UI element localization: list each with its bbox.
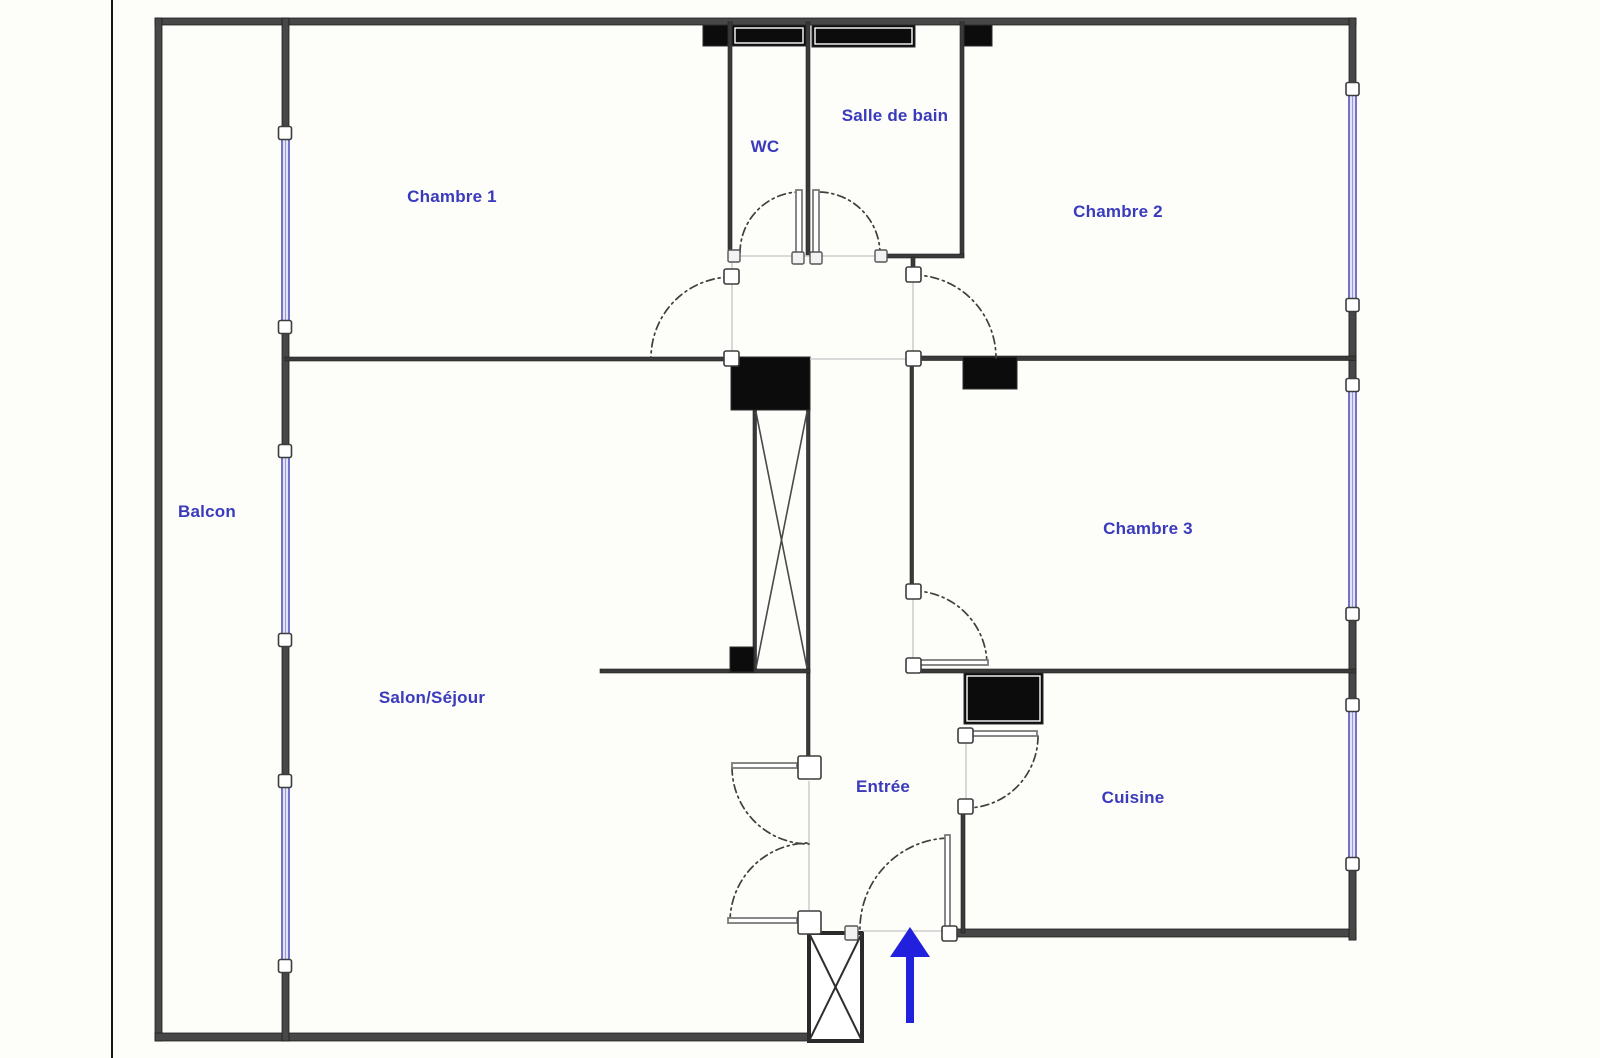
label-chambre2: Chambre 2	[1073, 202, 1163, 221]
leaf-sdb	[813, 190, 819, 256]
arc-salon-door-lower	[730, 843, 809, 922]
door-handle	[906, 658, 921, 673]
window-handle	[279, 634, 292, 647]
salon-door-post-upper	[798, 756, 821, 779]
wall-balcony-inner-seg4	[282, 966, 289, 1041]
wall-salon-entree	[600, 669, 810, 673]
wall-cuisine-west	[961, 808, 965, 933]
window-handle	[1346, 608, 1359, 621]
door-arcs	[651, 192, 1038, 931]
label-wc: WC	[751, 137, 780, 156]
wall-wc-sdb-divider	[806, 22, 810, 255]
leaf-salon-lower	[728, 918, 797, 923]
door-handle	[906, 351, 921, 366]
wall-right-seg2	[1349, 305, 1356, 385]
entrance-arrow-shaft	[906, 950, 914, 1023]
elevator-shaft	[756, 412, 807, 668]
entrance-arrow	[890, 927, 930, 1023]
wall-right-seg3	[1349, 614, 1356, 705]
label-balcon: Balcon	[178, 502, 236, 521]
arc-hall-west-door	[651, 277, 732, 358]
label-chambre3: Chambre 3	[1103, 519, 1193, 538]
window-handle	[1346, 858, 1359, 871]
wall-balcony-inner-seg1	[282, 18, 289, 133]
label-entree: Entrée	[856, 777, 910, 796]
window-handle	[279, 127, 292, 140]
floor-plan-canvas: Chambre 1 WC Salle de bain Chambre 2 Bal…	[0, 0, 1600, 1058]
cuisine-closet-block	[964, 673, 1043, 724]
arc-wc-door	[740, 192, 797, 253]
closet-block-top-1	[703, 25, 728, 46]
door-handle	[810, 252, 822, 264]
leaf-front-door	[945, 835, 950, 931]
wall-balcony-inner-seg2	[282, 327, 289, 451]
shaft-block-south	[730, 647, 754, 672]
window-handle	[279, 321, 292, 334]
wall-chambre3-west	[910, 358, 914, 591]
wall-right-seg4	[1349, 864, 1356, 940]
closet-block-top-4	[964, 25, 992, 46]
arc-cuisine-door	[966, 736, 1038, 808]
wall-sdb-south	[883, 254, 964, 258]
leaf-salon-upper	[732, 763, 797, 768]
arc-chambre2-door	[913, 275, 996, 358]
front-door-handle	[942, 926, 957, 941]
wall-sdb-east	[960, 22, 964, 257]
front-door-jamb	[845, 926, 858, 940]
door-handle	[906, 267, 921, 282]
wall-kitchen-bottom	[955, 929, 1356, 937]
window-handle	[1346, 83, 1359, 96]
salon-door-post-lower	[798, 911, 821, 934]
label-chambre1: Chambre 1	[407, 187, 497, 206]
leaf-cuisine	[968, 731, 1037, 736]
label-salle-de-bain: Salle de bain	[842, 106, 949, 125]
door-leaves	[728, 190, 1037, 931]
wall-chambre3-south	[910, 669, 1356, 673]
hall-closet-block	[963, 357, 1017, 389]
label-salon-sejour: Salon/Séjour	[379, 688, 485, 707]
window-handle	[279, 960, 292, 973]
interior-walls	[285, 22, 1356, 933]
wall-left-outer	[155, 18, 162, 1041]
window-handle	[1346, 299, 1359, 312]
door-handle	[728, 250, 740, 262]
arc-front-door	[860, 838, 948, 931]
window-handle	[279, 775, 292, 788]
window-handle	[1346, 699, 1359, 712]
leaf-chambre3	[917, 660, 988, 665]
leaf-wc	[796, 190, 802, 256]
shaft-block-north	[731, 357, 810, 410]
wall-shaft-east	[807, 358, 811, 757]
door-handle	[724, 269, 739, 284]
arc-sdb-door	[820, 192, 880, 255]
wall-top	[155, 18, 1356, 25]
label-cuisine: Cuisine	[1102, 788, 1165, 807]
wall-balcony-inner-seg3	[282, 640, 289, 781]
wall-chambre1-south	[285, 357, 733, 361]
window-handle	[279, 445, 292, 458]
arc-chambre3-door	[913, 591, 987, 665]
door-handle	[958, 799, 973, 814]
floor-plan-page: Chambre 1 WC Salle de bain Chambre 2 Bal…	[0, 0, 1600, 1058]
door-handle	[724, 351, 739, 366]
wall-bottom	[155, 1033, 811, 1041]
door-handle	[958, 728, 973, 743]
wall-wc-west	[728, 22, 732, 253]
arc-salon-door-upper	[732, 767, 809, 844]
window-handle	[1346, 379, 1359, 392]
door-handle	[792, 252, 804, 264]
door-handle	[906, 584, 921, 599]
entry-stair-box	[809, 933, 862, 1041]
door-handle	[875, 250, 887, 262]
